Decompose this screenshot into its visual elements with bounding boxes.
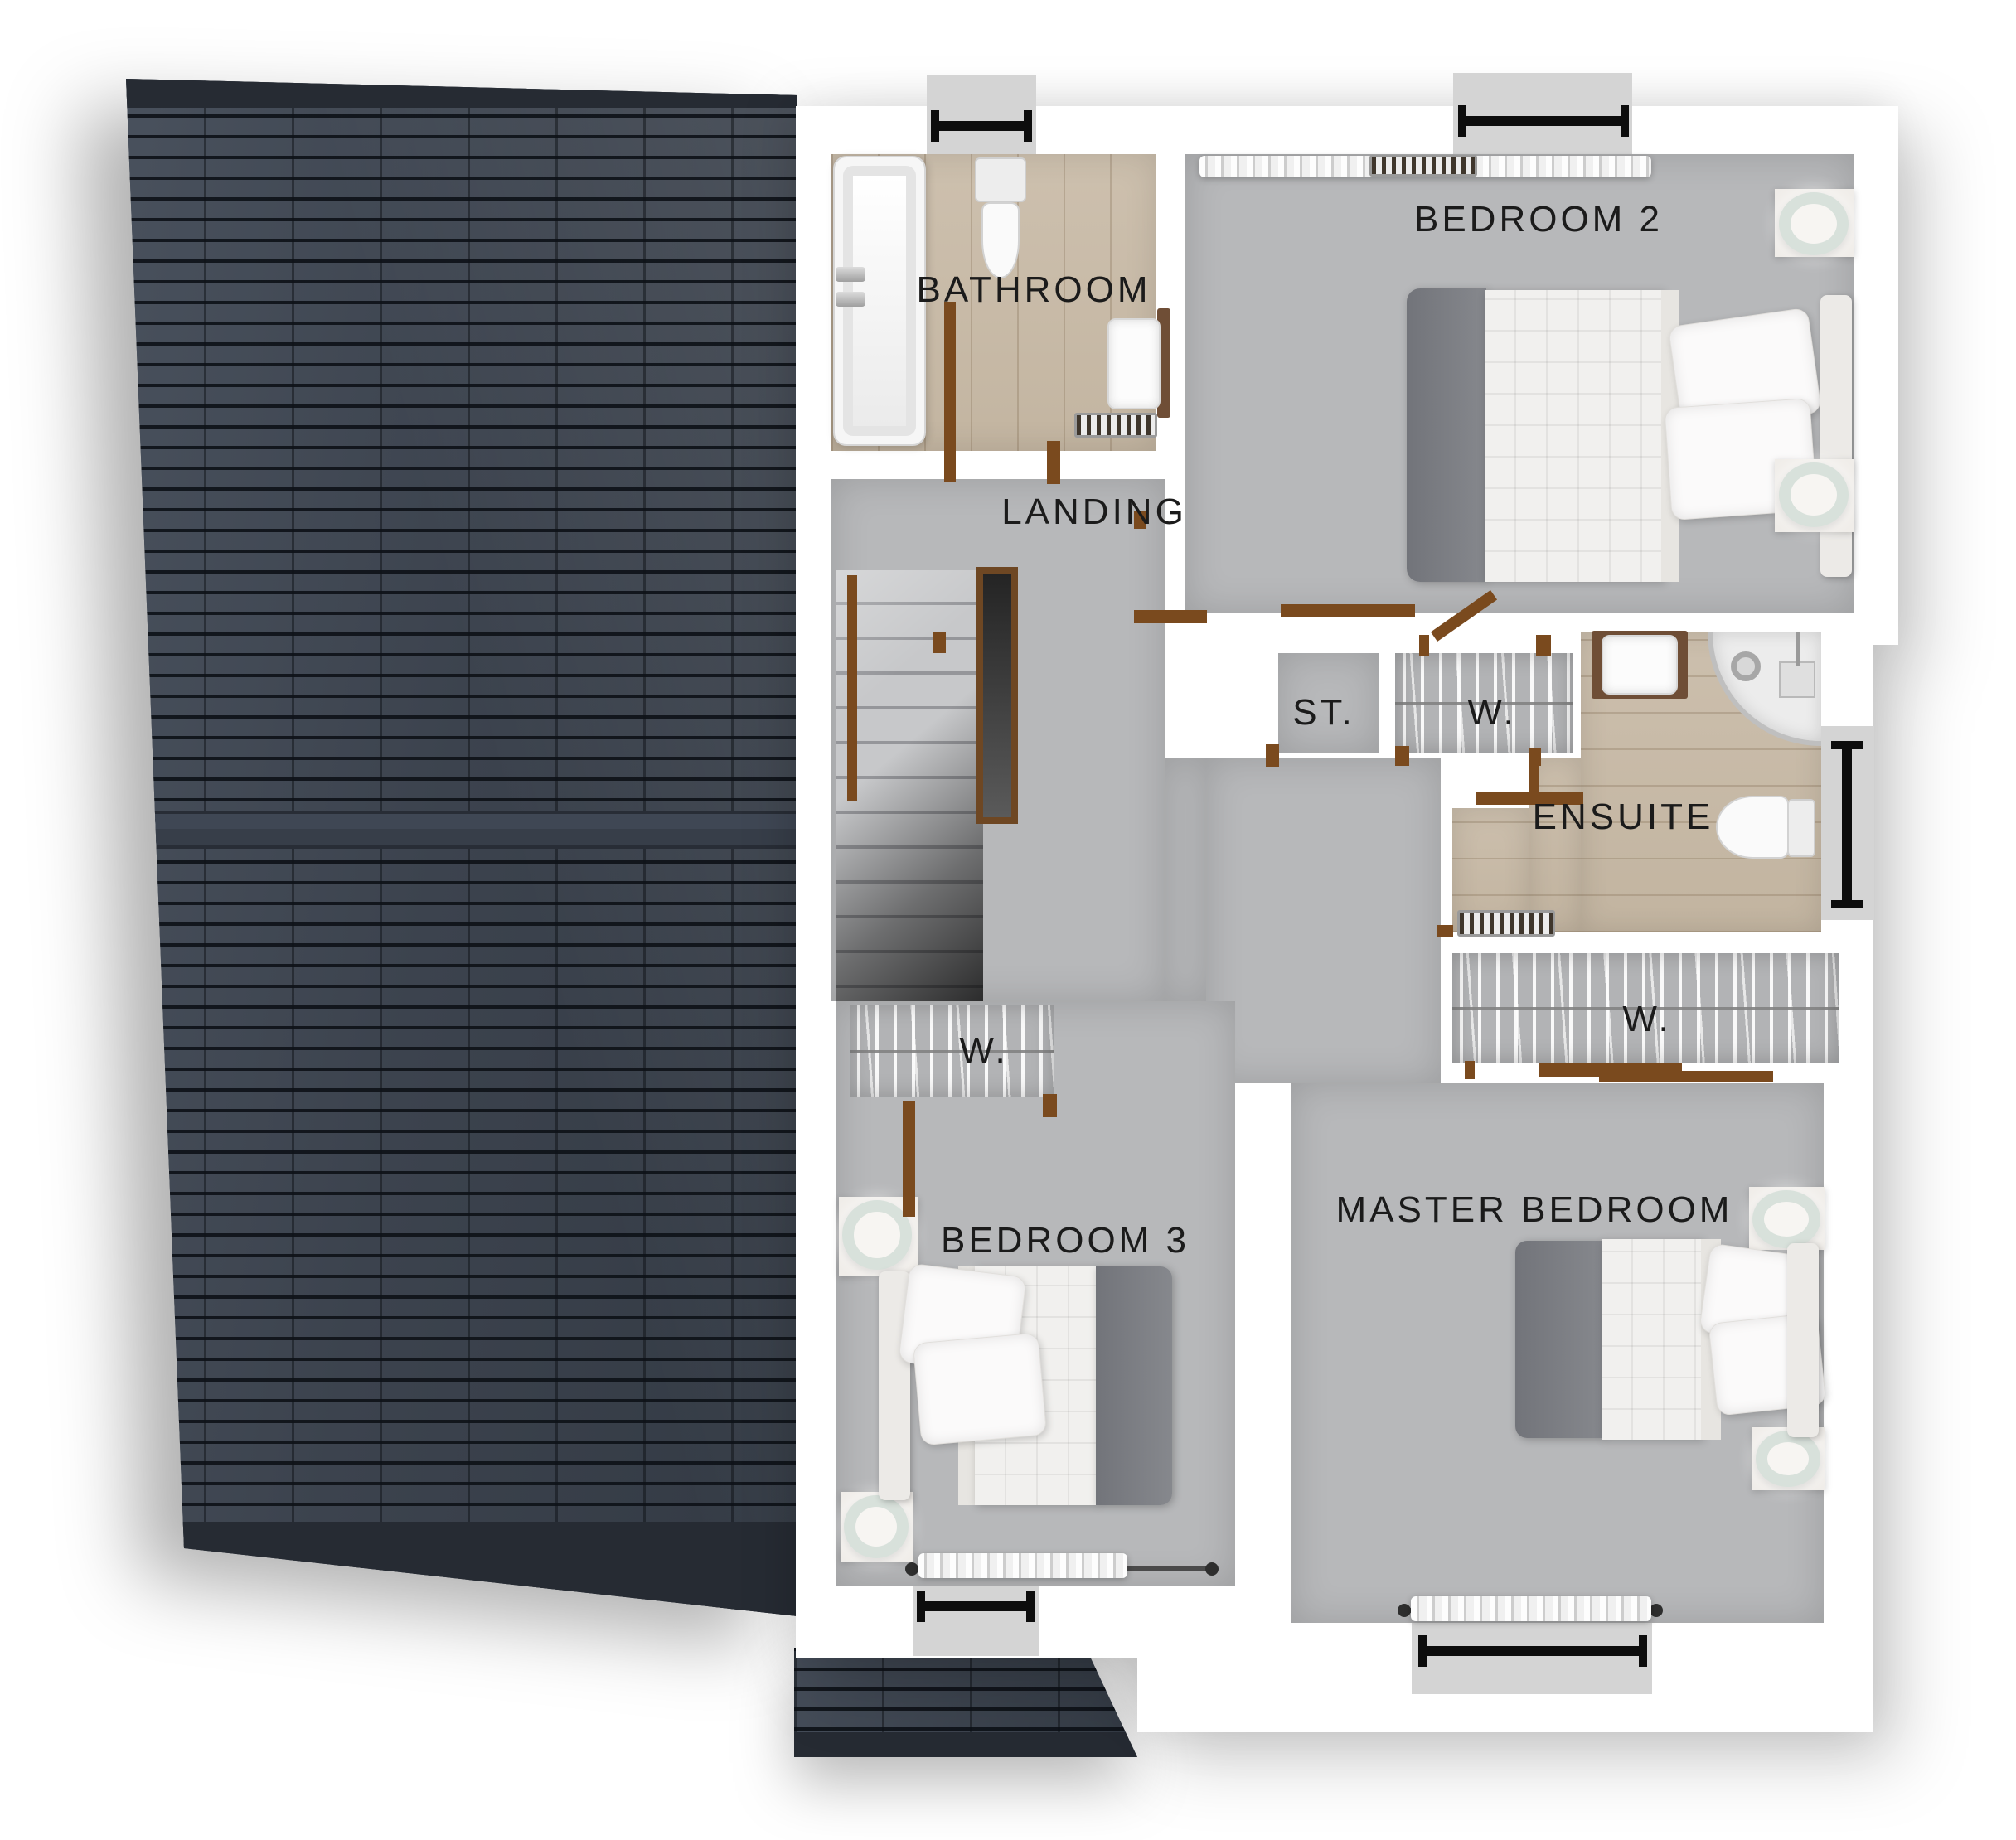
bedroom2-radiator [1369, 155, 1477, 177]
ensuite-label: ENSUITE [1533, 799, 1714, 835]
door-jamb [933, 632, 946, 653]
bath-tap-icon [836, 292, 865, 307]
wardrobe-wall-cap [1599, 1071, 1773, 1082]
bedroom3-door-leaf [903, 1101, 915, 1217]
master-headboard [1787, 1243, 1819, 1437]
door-jamb [1047, 441, 1060, 484]
door-jamb [1536, 635, 1551, 656]
bedroom2-bed-duvet [1485, 290, 1664, 582]
wash-basin [1107, 318, 1161, 409]
door-jamb [1043, 1094, 1057, 1117]
master-window [1412, 1621, 1652, 1694]
bedside-lamp [1779, 462, 1849, 527]
bedroom2-label: BEDROOM 2 [1414, 201, 1663, 238]
bedside-lamp [1752, 1190, 1820, 1248]
bedroom3-wardrobe-label: W. [959, 1033, 1008, 1069]
stairwell-void [983, 574, 1011, 817]
master-curtains [1411, 1596, 1651, 1621]
door-jamb [1419, 635, 1429, 656]
bathroom-radiator [1074, 413, 1157, 438]
landing-wardrobe-label: W. [1467, 695, 1516, 731]
master-wardrobe-label: W. [1622, 1001, 1671, 1038]
bedroom3-window-dimension-bar [918, 1601, 1034, 1611]
pillow [913, 1333, 1047, 1446]
bedside-lamp [1779, 192, 1849, 255]
bathroom-window-dimension-bar [932, 121, 1031, 131]
wall-cap [1134, 610, 1207, 623]
ensuite-toilet-bowl [1716, 796, 1789, 859]
master-bed-throw [1515, 1241, 1603, 1438]
bedroom3-window [913, 1581, 1039, 1656]
landing-corridor-connector [1165, 758, 1206, 1001]
bedroom3-label: BEDROOM 3 [941, 1223, 1190, 1259]
bathroom-window [927, 75, 1036, 157]
ensuite-basin [1602, 635, 1678, 695]
wall-cap [1281, 604, 1415, 617]
toilet-cistern [975, 157, 1026, 202]
toilet-bowl [981, 202, 1020, 278]
bedroom3-bed-throw [1096, 1266, 1172, 1505]
shower-drain-icon [1731, 651, 1761, 681]
door-jamb [1266, 744, 1279, 767]
bedroom2-headboard [1820, 295, 1852, 577]
door-jamb [1437, 925, 1453, 937]
landing-label: LANDING [1001, 494, 1187, 530]
shower-pipe-icon [1795, 632, 1800, 666]
storage-label: ST. [1292, 695, 1355, 731]
first-floor-plan: BATHROOM BEDROOM 2 LANDING ST. W. ENSUIT… [0, 0, 2016, 1840]
bath-tap-icon [836, 267, 865, 282]
bedside-lamp [1756, 1431, 1820, 1487]
stairs [836, 570, 983, 1001]
stair-trim [847, 575, 857, 801]
bedside-lamp [842, 1200, 912, 1270]
ensuite-radiator [1457, 910, 1555, 937]
master-bed-duvet [1602, 1239, 1703, 1440]
ensuite-window-dimension-bar [1842, 742, 1852, 908]
master-window-dimension-bar [1419, 1646, 1646, 1656]
bathroom-door-leaf [944, 302, 956, 482]
landing-corridor [1206, 758, 1441, 1083]
bedroom2-window-dimension-bar [1459, 116, 1628, 126]
door-jamb [1529, 761, 1539, 794]
ensuite-toilet-cistern [1787, 799, 1815, 857]
shower-head-icon [1779, 661, 1815, 698]
bathroom-label: BATHROOM [917, 272, 1151, 308]
door-jamb [1395, 746, 1409, 766]
bedroom3-curtains [918, 1553, 1127, 1578]
bedside-lamp [844, 1495, 909, 1558]
master-bedroom-label: MASTER BEDROOM [1336, 1192, 1733, 1228]
door-jamb [1465, 1061, 1475, 1079]
bedroom3-wardrobe [850, 1005, 1054, 1097]
bedroom2-bed-throw [1407, 288, 1486, 582]
